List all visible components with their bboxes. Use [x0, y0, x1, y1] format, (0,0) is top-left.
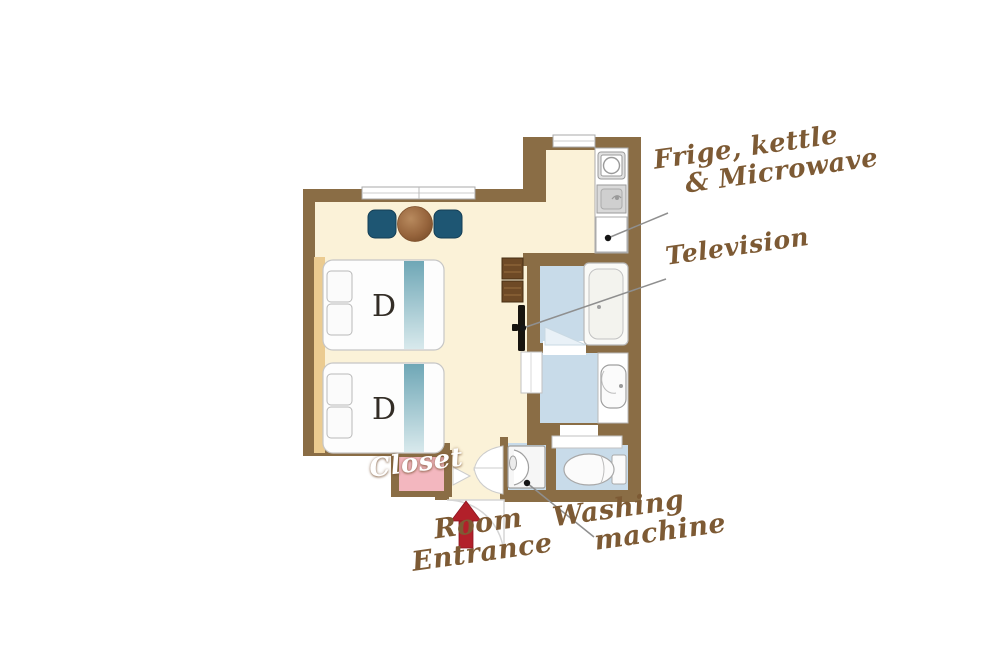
floor-plan-drawing: D D	[0, 0, 1000, 667]
window-kitchen	[553, 135, 595, 147]
pillow-icon	[327, 374, 352, 405]
bed-2: D	[323, 363, 444, 453]
bathtub-icon	[584, 263, 628, 345]
notch-floor	[523, 196, 546, 258]
kitchen-sink-icon	[597, 185, 626, 213]
round-table-icon	[398, 207, 433, 242]
window-main	[362, 187, 475, 199]
pillow-icon	[327, 304, 352, 335]
chair-icon	[368, 210, 396, 238]
bed-size-letter: D	[372, 392, 396, 427]
dining-set	[368, 207, 462, 242]
fridge-cabinet-icon	[596, 217, 627, 252]
chair-icon	[434, 210, 462, 238]
pillow-icon	[327, 271, 352, 302]
bed-1: D	[323, 260, 444, 350]
stove-icon	[598, 152, 625, 179]
floor-plan-canvas: D D	[0, 0, 1000, 667]
sliding-door-washroom	[521, 352, 542, 393]
vanity-sink-icon	[598, 353, 628, 423]
bed-size-letter: D	[372, 289, 396, 324]
pillow-icon	[327, 407, 352, 438]
